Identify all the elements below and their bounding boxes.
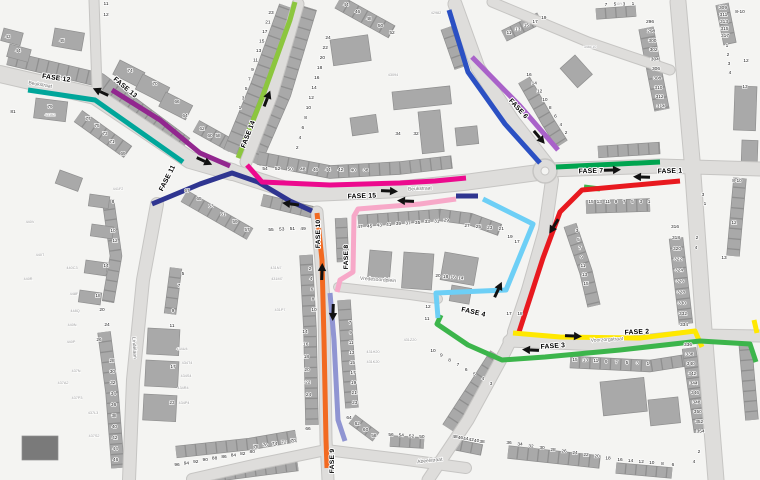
house-number: 18 [95, 293, 101, 299]
house-number: 2 [296, 145, 299, 151]
house-number: 306 [652, 66, 660, 72]
house-number: 315 [720, 26, 728, 32]
house-number: 86 [221, 454, 227, 460]
house-number: 61 [220, 211, 226, 217]
house-number: 32 [413, 131, 419, 137]
house-number: 29 [444, 218, 450, 224]
house-number: 13 [515, 26, 521, 32]
house-number: 80 [250, 449, 256, 455]
house-number: 34 [395, 131, 401, 137]
house-number: 70 [152, 81, 158, 87]
house-number: 338 [685, 352, 693, 358]
fase-7-label: FASE 7 [579, 168, 604, 176]
fase-8-label: FASE 8 [343, 245, 350, 270]
fase-15-label: FASE 15 [348, 193, 377, 201]
parcel-code: 434P4 [179, 401, 190, 405]
parcel-code: 437A2 [58, 381, 69, 385]
house-number: 5 [473, 372, 476, 378]
house-number: 12 [743, 58, 749, 64]
house-number: 22 [583, 452, 589, 458]
house-number: 48 [366, 16, 372, 22]
building-terrace [616, 468, 672, 473]
parcel-code: 346L10 [584, 45, 597, 49]
house-number: 298 [647, 28, 655, 34]
house-number: 8 [312, 297, 315, 303]
house-number: 71 [109, 139, 115, 145]
house-number: 4 [729, 70, 732, 76]
house-number: 5 [245, 86, 248, 92]
building [330, 35, 371, 66]
house-number: 77 [85, 116, 91, 122]
house-number: 2 [565, 130, 568, 136]
fase-2-label: FASE 2 [624, 328, 649, 336]
house-number: 3 [490, 381, 493, 387]
house-number: 19 [507, 234, 513, 240]
house-number: 28 [550, 447, 556, 453]
house-number: 1 [239, 105, 242, 111]
house-number: 62 [199, 126, 205, 132]
house-number: 312 [656, 94, 664, 100]
parcel-code: 437P3 [72, 396, 83, 400]
house-number: 17 [506, 311, 512, 317]
house-number: 4 [299, 135, 302, 141]
house-number: 310 [654, 85, 662, 91]
house-number: 11 [104, 1, 109, 7]
house-number: 23 [268, 10, 274, 16]
building [455, 126, 479, 146]
house-number: 22 [305, 379, 311, 385]
house-number: 302 [650, 47, 658, 53]
house-number: 320 [673, 246, 681, 252]
fase-1-label: FASE 1 [658, 168, 683, 176]
parcel-code: 440C3 [66, 266, 77, 270]
house-number: 67 [184, 188, 190, 194]
house-number: 3 [639, 199, 642, 205]
house-number: 5 [182, 271, 185, 277]
house-number: 44 [325, 167, 331, 173]
arrow-shaft [290, 204, 299, 205]
building [401, 252, 433, 290]
parcel-code: 431N7 [270, 266, 281, 270]
house-number: 50 [288, 166, 294, 172]
parcel-code: 441F2 [113, 187, 124, 191]
house-number: 330 [678, 300, 686, 306]
house-number: 21 [352, 390, 358, 396]
house-number: 324 [675, 268, 683, 274]
house-number: 6 [672, 462, 675, 468]
house-number: 20 [435, 273, 441, 279]
building-terrace [733, 178, 740, 256]
house-number: 64 [182, 113, 188, 119]
house-number: 8 [448, 357, 451, 363]
house-number: 311 [720, 12, 728, 18]
house-number: 318 [672, 235, 680, 241]
house-number: 18 [443, 274, 449, 280]
house-number: 52 [409, 433, 415, 439]
parcel-code: 431K20 [366, 360, 379, 364]
parcel-code: 440R [23, 277, 32, 281]
house-number: 34 [517, 442, 523, 448]
parcel-code: 434T4 [182, 361, 193, 365]
house-number: 13 [583, 358, 589, 364]
house-number: 79 [47, 104, 53, 110]
house-number: 1 [648, 199, 651, 205]
house-number: 94 [184, 460, 190, 466]
building [600, 377, 647, 415]
house-number: 42 [338, 167, 344, 173]
parcel-code: 437L3 [88, 411, 99, 415]
house-number: 296 [646, 19, 654, 25]
house-number: 16 [617, 457, 623, 463]
house-number: 6 [465, 367, 468, 373]
building [22, 436, 58, 460]
house-number: 18 [304, 354, 310, 360]
house-number: 342 [688, 371, 696, 377]
house-number: 20 [99, 307, 105, 313]
house-number: 11 [170, 323, 175, 329]
house-number: 7 [579, 246, 582, 252]
house-number: 12 [639, 459, 645, 465]
house-number: 10 [110, 228, 116, 234]
house-number: 74 [127, 68, 133, 74]
house-number: 7 [178, 283, 181, 289]
house-number: 9 [580, 254, 583, 260]
parcel-code: 43094 [388, 73, 399, 77]
house-number: 23 [487, 225, 493, 231]
parcel-code: 431Z20 [404, 338, 417, 342]
house-number: 328 [677, 289, 685, 295]
house-number: 1 [632, 1, 635, 7]
house-number: 4 [559, 122, 562, 128]
house-number: 3 [623, 1, 626, 7]
house-number: 3 [576, 228, 579, 234]
house-number: 45 [367, 223, 373, 229]
fase-10-label: FASE 10 [315, 220, 322, 249]
house-number: 22 [323, 45, 329, 51]
house-number: 5 [626, 360, 629, 366]
house-number: 5 [577, 237, 580, 243]
house-number: 12 [731, 220, 737, 226]
parcel-code: 440N [67, 323, 76, 327]
house-number: 6 [301, 125, 304, 131]
parcel-code: 434U4 [176, 347, 187, 351]
house-number: 50 [419, 434, 425, 440]
parcel-code: 434R4 [177, 386, 188, 390]
building [733, 86, 757, 131]
building [147, 328, 180, 356]
house-number: 19 [541, 15, 547, 21]
house-number: 16 [451, 275, 457, 281]
house-number: 13 [256, 48, 262, 54]
house-number: 20 [304, 367, 310, 373]
house-number: 88 [212, 456, 218, 462]
house-number: 56 [388, 432, 394, 438]
house-number: 62 [355, 421, 361, 427]
house-number: 54 [399, 433, 405, 439]
house-number: 75 [94, 123, 100, 129]
house-number: 14 [302, 329, 308, 335]
house-number: 7 [349, 320, 352, 326]
house-number: 23 [352, 400, 358, 406]
house-number: 69 [120, 151, 126, 157]
building [143, 394, 177, 422]
house-number: 33 [425, 219, 431, 225]
house-number: 18 [317, 65, 323, 71]
parcel-code: 448Q [70, 309, 79, 313]
house-number: 10 [311, 307, 317, 313]
house-number: 4 [481, 376, 484, 382]
house-number: 7 [615, 359, 618, 365]
house-number: 18 [517, 311, 523, 317]
parcel-code: 440T [36, 253, 45, 257]
house-number: 26 [561, 449, 567, 455]
house-number: 19 [351, 380, 357, 386]
house-number: 49 [300, 226, 306, 232]
house-number: 14 [458, 275, 464, 281]
house-number: 309 [719, 5, 727, 11]
house-number: 46 [355, 9, 361, 15]
house-number: 37 [405, 221, 411, 227]
house-number: 2 [727, 52, 730, 58]
house-number: 11 [593, 358, 598, 364]
house-number: 12 [309, 95, 315, 101]
house-number: 13 [582, 272, 588, 278]
fase-9-label: FASE 9 [329, 449, 336, 474]
house-number: 84 [231, 452, 237, 458]
house-number: 17 [170, 364, 176, 370]
building-terrace [170, 268, 176, 314]
house-number: 46 [313, 167, 319, 173]
house-number: 14 [103, 263, 109, 269]
house-number: 304 [651, 57, 659, 63]
house-number: 21 [265, 20, 271, 26]
house-number: 66 [174, 99, 180, 105]
house-number: 300 [648, 38, 656, 44]
house-number: 352 [695, 419, 703, 425]
house-number: 20 [320, 55, 326, 61]
house-number: 313 [720, 19, 728, 25]
house-number: 350 [694, 409, 702, 415]
house-number: 7 [457, 362, 460, 368]
house-number: 57 [244, 227, 250, 233]
house-number: 25 [476, 224, 482, 230]
parcel-code: 43162 [45, 113, 56, 117]
house-number: 24 [325, 35, 331, 41]
house-number: 9 [605, 359, 608, 365]
house-number: 336 [684, 342, 692, 348]
house-number: 5 [614, 2, 617, 8]
street-name-label: Beukstraat [408, 185, 433, 192]
house-number: 2 [309, 266, 312, 272]
house-number: 3 [636, 361, 639, 367]
house-number: 9 [349, 330, 352, 336]
building [648, 397, 681, 426]
house-number: 43 [5, 34, 11, 40]
house-number: 24 [104, 322, 110, 328]
house-number: 7 [248, 77, 251, 83]
house-number: 38 [479, 439, 485, 445]
parcel-code: 42982 [431, 11, 442, 15]
house-number: 74 [272, 441, 278, 447]
house-number: 10 [306, 105, 312, 111]
map-canvas: 43162441F2440V440T440R440C3448F448Q440N4… [0, 0, 760, 480]
house-number: 6 [311, 286, 314, 292]
house-number: 8 [661, 461, 664, 467]
house-number: 58 [371, 433, 377, 439]
house-number: 78 [253, 444, 259, 450]
house-number: 60 [207, 133, 213, 139]
house-number: 35 [415, 220, 421, 226]
house-number: 14 [311, 85, 317, 91]
house-number: 16 [526, 72, 532, 78]
house-number: 15 [583, 281, 589, 287]
house-number: 322 [674, 257, 682, 263]
house-number: 4 [695, 245, 698, 251]
house-number: 4 [693, 459, 696, 465]
house-number: 11 [507, 30, 512, 36]
house-number: 73 [102, 131, 108, 137]
house-number: 16 [314, 75, 320, 81]
house-number: 40 [112, 424, 118, 430]
house-number: 21 [499, 226, 505, 232]
house-number: 81 [10, 109, 16, 115]
roadworks-phasing-map: 43162441F2440V440T440R440C3448F448Q440N4… [0, 0, 760, 480]
house-number: 346 [691, 390, 699, 396]
building-terrace [390, 441, 424, 443]
house-number: 14 [628, 458, 634, 464]
house-number: 12 [537, 89, 543, 95]
house-number: 28 [109, 358, 115, 364]
house-number: 10 [430, 348, 436, 354]
house-number: 92 [193, 459, 199, 465]
house-number: 51 [290, 226, 296, 232]
house-number: 8 [304, 115, 307, 121]
house-number: 16 [303, 342, 309, 348]
house-number: 44 [343, 2, 349, 8]
house-number: 9 [172, 308, 175, 314]
house-number: 14 [532, 80, 538, 86]
house-number: 96 [174, 462, 180, 468]
house-number: 32 [528, 443, 534, 449]
house-number: 314 [657, 104, 665, 110]
house-number: 3 [242, 96, 245, 102]
house-number: 8-10 [735, 9, 745, 15]
street [94, 0, 97, 88]
house-number: 354 [697, 428, 705, 434]
parcel-code: 437N [71, 369, 80, 373]
house-number: 60 [363, 427, 369, 433]
house-number: 54 [262, 166, 268, 172]
house-number: 44 [15, 48, 21, 54]
house-number: 44 [113, 446, 119, 452]
house-number: 17 [532, 19, 538, 25]
house-number: 58 [215, 133, 221, 139]
house-number: 8-10 [732, 178, 742, 184]
parcel-code: 448F [70, 292, 79, 296]
house-number: 90 [203, 457, 209, 463]
house-number: 63 [208, 204, 214, 210]
house-number: 11 [581, 263, 586, 269]
house-number: 30 [110, 369, 116, 375]
house-number: 64 [346, 415, 352, 421]
house-number: 24 [306, 392, 312, 398]
house-number: 13 [721, 255, 727, 261]
house-number: 10 [649, 460, 655, 466]
house-number: 82 [240, 451, 246, 457]
house-number: 52 [389, 30, 395, 36]
house-number: 50 [378, 23, 384, 29]
parcel-code: 440P [67, 340, 76, 344]
parcel-code: 437S2 [89, 434, 100, 438]
house-number: 10 [542, 97, 548, 103]
parcel-code: 440V [26, 220, 35, 224]
house-number: 55 [268, 227, 274, 233]
house-number: 12 [103, 12, 109, 18]
house-number: 11 [605, 199, 610, 205]
house-number: 15 [259, 39, 265, 45]
house-number: 2 [698, 449, 701, 455]
roundabout-island [541, 167, 549, 175]
house-number: 32 [110, 380, 116, 386]
house-number: 66 [305, 426, 311, 432]
house-number: 348 [692, 400, 700, 406]
house-number: 47 [357, 224, 363, 230]
house-number: 24 [572, 450, 578, 456]
house-number: 11 [425, 316, 430, 322]
parcel-code: 434S4 [181, 374, 192, 378]
house-number: 344 [690, 380, 698, 386]
house-number: 17 [514, 239, 520, 245]
house-number: 1 [726, 43, 729, 49]
house-number: 52 [275, 166, 281, 172]
house-number: 36 [111, 402, 117, 408]
yellow-stub-line [754, 320, 757, 333]
house-number: 18 [605, 455, 611, 461]
house-number: 308 [653, 75, 661, 81]
house-number: 15 [524, 23, 530, 29]
house-number: 39 [396, 221, 402, 227]
building [418, 110, 444, 154]
house-number: 40 [351, 167, 357, 173]
house-number: 36 [506, 440, 512, 446]
house-number: 8 [112, 199, 115, 205]
house-number: 72 [281, 440, 287, 446]
house-number: 3 [728, 61, 731, 67]
house-number: 13 [742, 84, 748, 90]
house-number: 6 [554, 114, 557, 120]
house-number: 30 [539, 445, 545, 451]
house-number: 26 [96, 337, 102, 343]
house-number: 334 [680, 322, 688, 328]
house-number: 31 [434, 218, 440, 224]
house-number: 12 [112, 238, 118, 244]
house-number: 45 [59, 38, 65, 44]
house-number: 316 [671, 224, 679, 230]
house-number: 46 [113, 457, 119, 463]
house-number: 326 [676, 279, 684, 285]
house-number: 17 [262, 29, 268, 35]
house-number: 17 [350, 370, 356, 376]
house-number: 43 [377, 223, 383, 229]
house-number: 332 [679, 311, 687, 317]
house-number: 41 [386, 222, 392, 228]
building [88, 194, 109, 209]
house-number: 38 [111, 413, 117, 419]
house-number: 5 [631, 199, 634, 205]
house-number: 38 [363, 168, 369, 174]
house-number: 53 [279, 227, 285, 233]
house-number: 65 [196, 196, 202, 202]
